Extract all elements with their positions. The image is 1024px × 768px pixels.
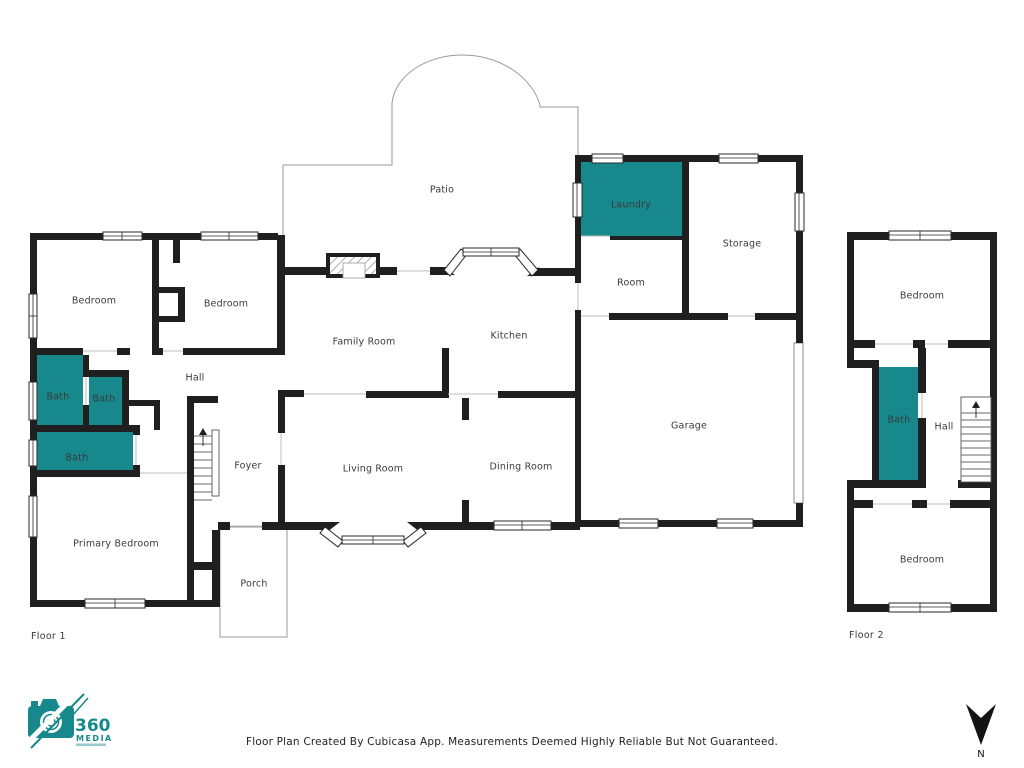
room-label-porch: Porch: [240, 579, 267, 590]
room-label-foyer: Foyer: [234, 461, 261, 472]
room-label-f2-bedroom-top: Bedroom: [900, 291, 944, 302]
room-label-dining-room: Dining Room: [490, 462, 553, 473]
room-label-bedroom-b: Bedroom: [204, 299, 248, 310]
room-label-f2-hall: Hall: [934, 422, 953, 433]
room-label-living-room: Living Room: [343, 464, 404, 475]
living-room-bay-window: [320, 527, 426, 547]
room-label-f2-bath: Bath: [888, 415, 911, 426]
room-label-room: Room: [617, 278, 645, 289]
garage-door: [794, 343, 803, 503]
room-label-primary-bedroom: Primary Bedroom: [73, 539, 159, 550]
floor2-label: Floor 2: [849, 630, 884, 641]
room-label-bath-c: Bath: [66, 453, 89, 464]
room-label-storage: Storage: [723, 239, 762, 250]
kitchen-bay-window: [444, 248, 538, 276]
floor1-doors: [83, 236, 755, 526]
floor1-label: Floor 1: [31, 631, 66, 642]
room-label-garage: Garage: [671, 421, 707, 432]
room-fill-bath-c: [37, 432, 133, 470]
logo-number: 360: [75, 716, 111, 736]
room-label-f2-bedroom-bottom: Bedroom: [900, 555, 944, 566]
room-label-family-room: Family Room: [333, 337, 396, 348]
room-label-patio: Patio: [430, 185, 454, 196]
fireplace: [328, 255, 378, 278]
north-label: N: [977, 749, 984, 760]
floor2-stairs: [961, 397, 991, 482]
room-fill-bath-a: [37, 355, 83, 425]
room-label-bath-b: Bath: [93, 394, 116, 405]
patio-outline: [283, 55, 578, 271]
room-label-bedroom-a: Bedroom: [72, 296, 116, 307]
room-label-kitchen: Kitchen: [490, 331, 527, 342]
room-label-hall: Hall: [185, 373, 204, 384]
floor-plan-page: Patio Laundry Storage Room Bedroom Bedro…: [0, 0, 1024, 768]
disclaimer-text: Floor Plan Created By Cubicasa App. Meas…: [0, 736, 1024, 748]
floor-plan-drawing: [0, 0, 1024, 768]
floor1-stairs: [194, 428, 219, 500]
room-label-laundry: Laundry: [611, 200, 651, 211]
room-label-bath-a: Bath: [47, 392, 70, 403]
